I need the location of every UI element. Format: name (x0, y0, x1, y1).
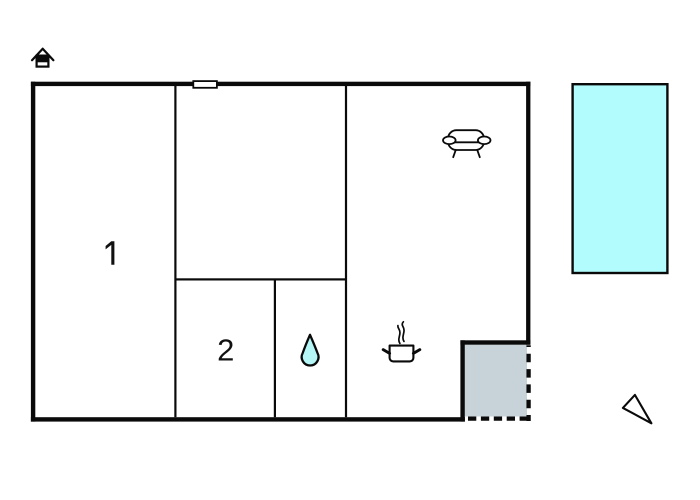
svg-text:2: 2 (217, 333, 234, 368)
